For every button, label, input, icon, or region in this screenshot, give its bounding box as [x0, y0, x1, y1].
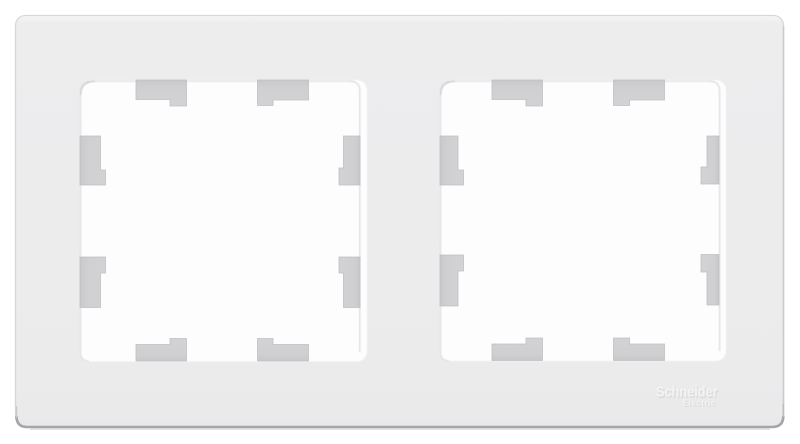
svg-text:Electric: Electric	[683, 398, 716, 407]
